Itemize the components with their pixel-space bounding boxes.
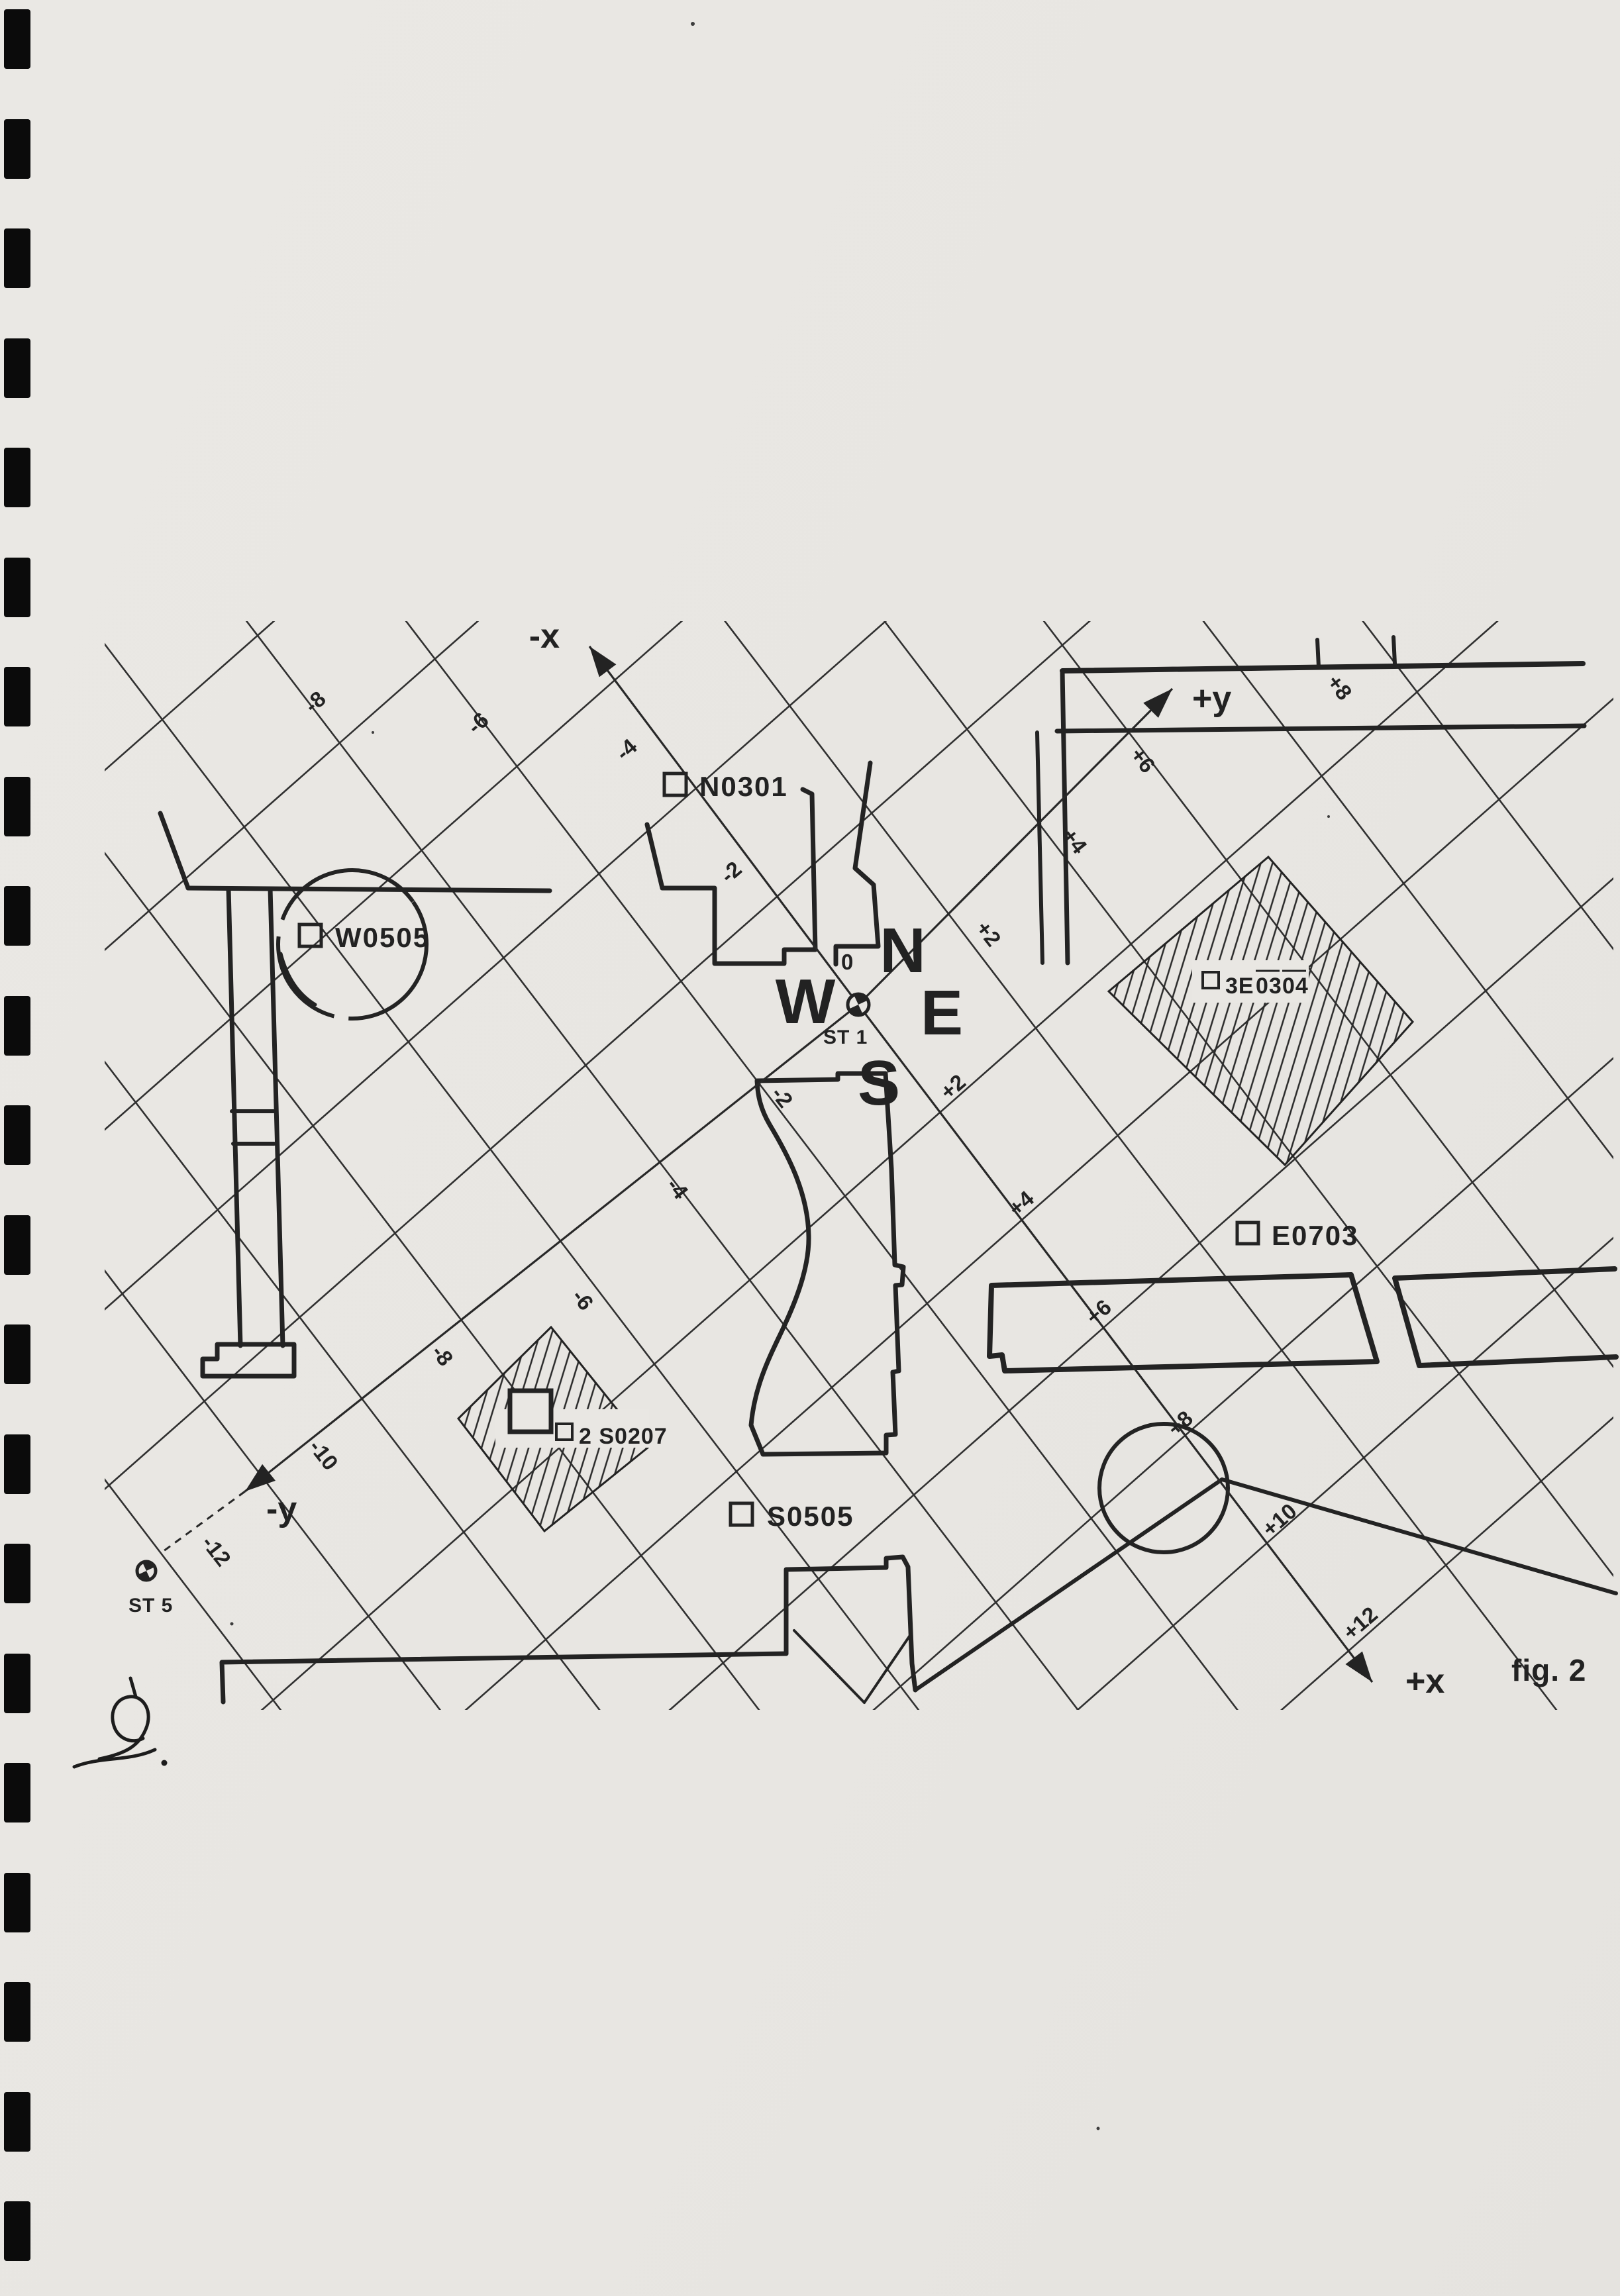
tick-label-y-+2: +2 (971, 917, 1005, 951)
tick-label-y-+8: +8 (1322, 670, 1356, 705)
site-marker-e0703 (1237, 1223, 1258, 1244)
central-building (751, 1073, 903, 1454)
grid-line-y-6 (91, 0, 1620, 2111)
binding-tab (4, 2201, 30, 2261)
compass-letter-e: E (921, 977, 963, 1048)
axis-x-neg (589, 646, 858, 1005)
grid-line-y--10 (0, 73, 1440, 2296)
grid-line-x-8 (0, 297, 1620, 2296)
binding-tab (4, 1544, 30, 1603)
south-v-right (864, 1634, 911, 1703)
south-v-left (794, 1630, 864, 1703)
tick-label-x--4: -4 (611, 734, 642, 766)
binding-tab (4, 886, 30, 946)
hatch-e0304 (1109, 857, 1413, 1165)
grid-line-x-4 (0, 82, 1620, 2296)
left-wall-top-diag (160, 813, 188, 888)
structure-outlines (160, 637, 1616, 1703)
grid-line-y--12 (0, 160, 1347, 2296)
figure-caption: fig. 2 (1511, 1653, 1586, 1687)
tick-label-y--6: -6 (567, 1285, 598, 1315)
tick-label-y-+6: +6 (1125, 743, 1160, 777)
axis-label-y-pos: +y (1192, 679, 1231, 718)
northeast-wall-tick-1 (1317, 640, 1319, 667)
site-label-e0703: E0703 (1272, 1220, 1358, 1251)
grid-line-y--6 (0, 0, 1620, 2296)
east-trapezoid-1 (989, 1275, 1377, 1371)
grid-line-y--8 (0, 0, 1533, 2296)
binding-tab (4, 1324, 30, 1384)
grid-line-y--4 (0, 0, 1620, 2296)
site-label-s0505: S0505 (767, 1501, 854, 1532)
scan-speck-0 (691, 22, 695, 26)
boundary-diag-right (1222, 1479, 1616, 1593)
axis-label-x-neg: -x (529, 617, 560, 656)
binding-tab (4, 996, 30, 1056)
binding-tab (4, 1105, 30, 1165)
site-marker-n0301 (664, 774, 686, 795)
binding-tab (4, 9, 30, 69)
binding-tab (4, 448, 30, 507)
signature-stroke-0 (99, 1697, 148, 1759)
binding-tabs-strip (0, 0, 40, 2296)
northeast-wall-top (1062, 664, 1583, 671)
tick-label-x--2: -2 (715, 856, 746, 887)
signature-stroke-2 (130, 1678, 136, 1697)
tick-label-origin: 0 (841, 950, 853, 974)
tick-label-x-+2: +2 (935, 1070, 970, 1105)
scan-speck-2 (230, 1622, 234, 1626)
signature-dot (162, 1760, 168, 1766)
binding-tab (4, 228, 30, 288)
scan-speck-3 (1097, 2127, 1100, 2130)
binding-tab (4, 1654, 30, 1713)
binding-tab (4, 119, 30, 179)
grid-line-x--4 (0, 0, 1620, 1927)
area-label-e0304-part1: 04 (1282, 973, 1309, 999)
tick-label-x--6: -6 (462, 707, 493, 738)
station-symbol-st5 (137, 1562, 156, 1580)
east-trapezoid-2 (1395, 1269, 1616, 1366)
binding-tab (4, 1215, 30, 1275)
grid-line-y-4 (0, 0, 1620, 2199)
northeast-wall-left-a (1062, 671, 1068, 963)
site-plan-figure: -x+x+y-y ST 1ST 5-8-6-4-2+2+4+6+8+10+12+… (0, 0, 1620, 2296)
binding-tab (4, 777, 30, 836)
site-label-n0301: N0301 (699, 771, 788, 802)
axis-label-y-neg: -y (266, 1490, 297, 1528)
tick-label-x-+6: +6 (1081, 1295, 1116, 1330)
compass-letter-w: W (776, 966, 836, 1037)
axis-label-x-pos: +x (1405, 1662, 1444, 1701)
area-label-e0304: 3E (1225, 973, 1254, 999)
compass-letter-n: N (880, 915, 925, 986)
site-marker-s0505 (731, 1503, 752, 1525)
site-marker-w0505 (299, 924, 321, 946)
tick-label-x--8: -8 (299, 686, 330, 717)
axis-arrowhead-x-pos (1345, 1652, 1380, 1689)
grid-line-y--14 (0, 248, 1254, 2296)
binding-tab (4, 1873, 30, 1932)
binding-tab (4, 558, 30, 617)
binding-tab (4, 2092, 30, 2152)
scan-speck-4 (1327, 815, 1330, 818)
tick-label-x-+12: +12 (1338, 1602, 1382, 1645)
axis-arrowhead-x-neg (581, 640, 616, 677)
handwritten-signature (74, 22, 1330, 2130)
grid-line-y--2 (0, 0, 1620, 2296)
binding-tab (4, 338, 30, 398)
compass-letter-s: S (858, 1048, 900, 1119)
left-wall-foot (203, 1344, 294, 1376)
tick-label-y--2: -2 (766, 1082, 797, 1113)
grid-line-x-12 (57, 513, 1620, 2296)
station-label-st5: ST 5 (128, 1595, 173, 1617)
binding-tab (4, 1763, 30, 1822)
grid-line-x-2 (0, 0, 1620, 2250)
station-symbol-st1 (848, 994, 869, 1015)
binding-tab (4, 667, 30, 726)
tick-label-y--12: -12 (197, 1531, 236, 1571)
west-horizontal-wall (188, 888, 550, 891)
left-wall-line-a (228, 889, 240, 1346)
signature-stroke-1 (74, 1750, 155, 1767)
coordinate-grid (0, 0, 1620, 2296)
tick-label-x-+4: +4 (1003, 1185, 1038, 1221)
south-long-wall (222, 1654, 786, 1702)
scanned-report-page: -x+x+y-y ST 1ST 5-8-6-4-2+2+4+6+8+10+12+… (0, 0, 1620, 2296)
south-building (786, 1557, 915, 1690)
binding-tab (4, 1982, 30, 2042)
scan-speck-1 (372, 731, 374, 734)
binding-tab (4, 1434, 30, 1494)
tick-label-x-+10: +10 (1257, 1499, 1301, 1542)
area-label-e0304-part0: 03 (1256, 973, 1282, 999)
grid-line-y-10 (277, 0, 1620, 1936)
grid-line-x--6 (0, 0, 1620, 1820)
site-label-w0505: W0505 (335, 922, 430, 953)
area-label-s0207: 2 S0207 (579, 1424, 668, 1449)
northeast-wall-tick-2 (1393, 637, 1395, 664)
northeast-wall-left-b (1037, 732, 1042, 963)
boundary-diag-left (915, 1479, 1222, 1690)
s0207-square (510, 1391, 551, 1432)
